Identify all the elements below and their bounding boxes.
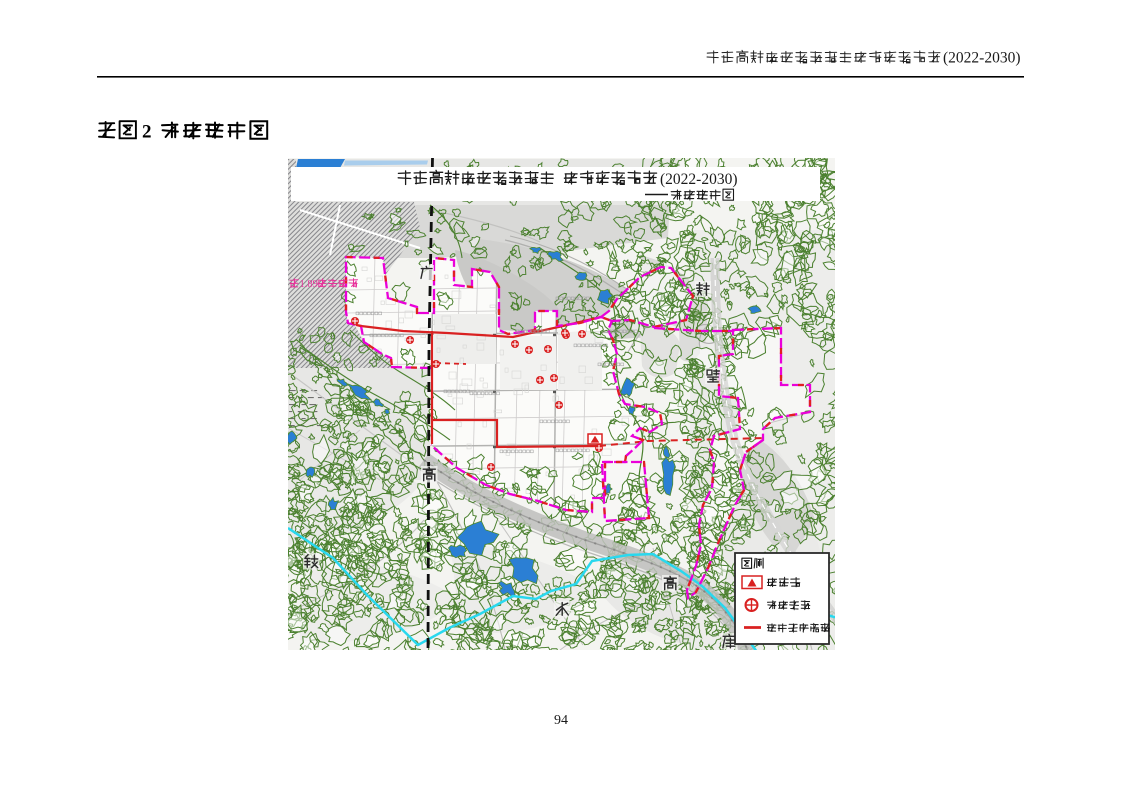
svg-text:(2022-2030): (2022-2030) xyxy=(943,50,1021,67)
svg-text:(2022-2030): (2022-2030) xyxy=(660,171,738,188)
svg-text:2: 2 xyxy=(142,122,152,143)
svg-text:1.89: 1.89 xyxy=(300,279,318,290)
svg-text:94: 94 xyxy=(554,713,568,728)
